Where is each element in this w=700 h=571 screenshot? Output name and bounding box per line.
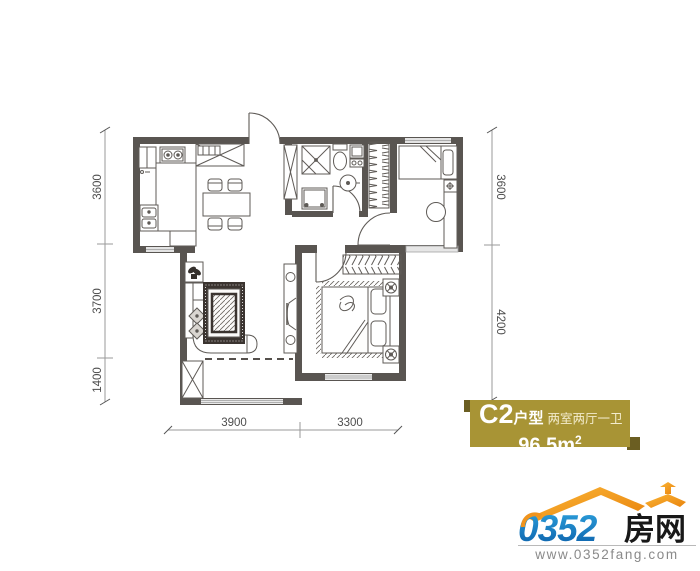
site-logo: 0352 房网 www.0352fang.com [518,479,698,565]
floorplan-page: 3600 3700 1400 3600 4200 3900 3300 [0,0,700,571]
single-bed [399,146,457,179]
dim-label: 4200 [494,309,506,335]
dimension-bottom: 3900 3300 [164,417,402,438]
desk-chair [427,203,446,222]
window-bedroom2-top [405,138,451,143]
brand-cn: 房网 [624,512,686,547]
washing-machine-icon [302,188,327,209]
nightstand-lamp-top [383,279,399,296]
kitchen-counter [156,163,196,246]
window-balcony [201,399,283,404]
dimension-right: 3600 4200 [484,127,506,403]
unit-rooms: 两室两厅一卫 [548,412,623,426]
duct-shaft [284,145,297,199]
sink-icon [140,205,158,231]
kitchen [139,144,250,246]
unit-area: 96.5m2 [470,430,630,456]
plant-icon [185,262,203,282]
logo-art: 0352 房网 [518,479,698,547]
unit-badge: C2户型两室两厅一卫 96.5m2 [464,398,644,452]
basin-icon [340,175,360,191]
dim-label: 3600 [494,174,506,200]
window-master [325,374,372,380]
window-kitchen-pass [146,247,174,252]
entry-cabinet [196,144,244,166]
shower-icon [302,146,330,174]
badge-panel: C2户型两室两厅一卫 96.5m2 [470,400,630,447]
master-wardrobe [343,255,401,274]
dim-label: 3300 [337,417,363,429]
fridge-icon [139,147,156,174]
unit-code: C2 [479,399,514,429]
balcony-storage-box [182,361,203,398]
door-entry [249,113,280,144]
site-url: www.0352fang.com [518,545,696,562]
door-bedroom2 [358,213,390,245]
door-master [316,252,346,282]
master-bedroom [316,255,401,363]
balcony [182,359,293,398]
dimension-left: 3600 3700 1400 [92,127,113,405]
dining-table [203,179,250,230]
bedroom2 [399,146,457,248]
dim-label: 3700 [92,288,104,314]
dim-label: 3600 [92,174,104,200]
dim-label: 1400 [92,367,104,393]
hall-closet [369,142,389,208]
nightstand-lamp-bottom [383,346,399,363]
toilet-icon [333,144,347,170]
double-bed [322,287,390,353]
stove-icon [160,147,185,163]
living-room [185,262,297,353]
desk [444,180,457,248]
coffee-table [212,294,236,332]
unit-type-label: 户型 [514,410,544,427]
dim-label: 3900 [221,417,247,429]
vanity-cabinet [350,145,364,167]
